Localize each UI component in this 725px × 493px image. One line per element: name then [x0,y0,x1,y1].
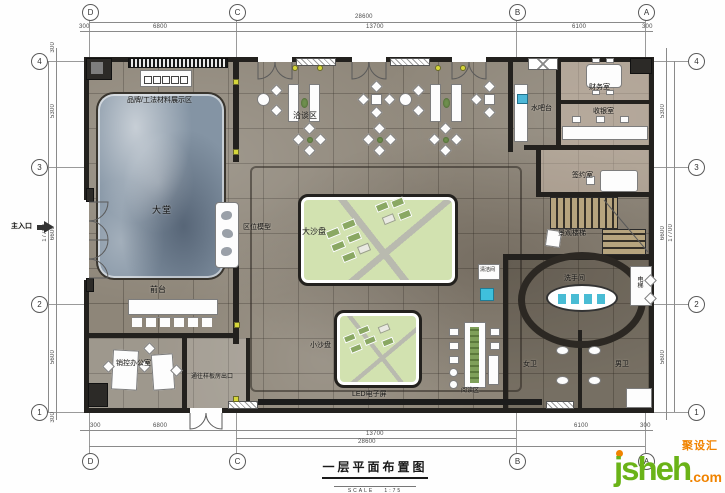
room-label-location-model: 区位模型 [243,224,271,231]
room-label-sales-office: 销控办公室 [116,360,151,367]
stair-cut-line [604,200,648,252]
door-leaf [190,413,206,429]
watermark-brand: jsheh [614,452,690,485]
door-leaf [369,62,386,79]
drawing-title: 一层平面布置图 [322,458,427,479]
watermark-cn: 聚设汇 [682,437,718,453]
title-block: 一层平面布置图 SCALE 1:75 [295,458,455,493]
room-label-washroom: 洗手间 [564,275,585,282]
door-leaf [89,221,108,240]
room-label-women-wc: 女卫 [523,361,537,368]
room-label-water-bar: 水吧台 [531,105,552,112]
room-label-finance: 财务室 [589,84,610,91]
room-label-landscape-stairs: 景观楼梯 [558,230,586,237]
main-entrance-arrow-icon [37,225,44,230]
main-entrance-label: 主入口 [11,223,32,230]
watermark: jsheh .com 聚设汇 [612,435,724,493]
room-label-elevator: 电梯 [636,276,642,288]
room-label-cleaning: 清洁间 [480,268,495,273]
scale-value: 1:75 [384,488,402,493]
room-label-reception: 前台 [150,286,166,294]
door-leaf [206,413,222,429]
room-label-exit-to-model: 通往样板房出口 [191,374,233,380]
room-label-reading-area: 阅读区 [461,388,479,394]
floor-plan-canvas: 28600 300 6800 13700 6100 300 300 6800 6… [0,0,725,493]
room-label-signing: 签约室 [572,172,593,179]
main-entrance-arrow-head-icon [44,221,54,233]
door-leaf [89,202,108,221]
room-label-display-area: 品牌/工法材料展示区 [127,97,192,104]
door-arcs-layer [0,0,725,493]
door-leaf [258,62,275,79]
room-label-big-sand-table: 大沙盘 [302,228,326,236]
drawing-scale: SCALE 1:75 [334,486,416,493]
room-label-small-sand-table: 小沙盘 [310,342,331,349]
room-label-men-wc: 男卫 [615,361,629,368]
door-leaf [352,62,369,79]
room-label-negotiation: 洽谈区 [293,112,317,120]
room-label-cashier: 收银室 [593,108,614,115]
room-label-led-screen: LED电子屏 [352,391,387,398]
door-leaf [275,62,292,79]
room-label-lobby: 大堂 [152,206,172,215]
scale-label: SCALE [348,488,374,493]
door-leaf [89,259,108,278]
door-leaf [452,62,469,79]
door-leaf [469,62,486,79]
door-leaf [89,240,108,259]
watermark-tld: .com [689,469,722,485]
